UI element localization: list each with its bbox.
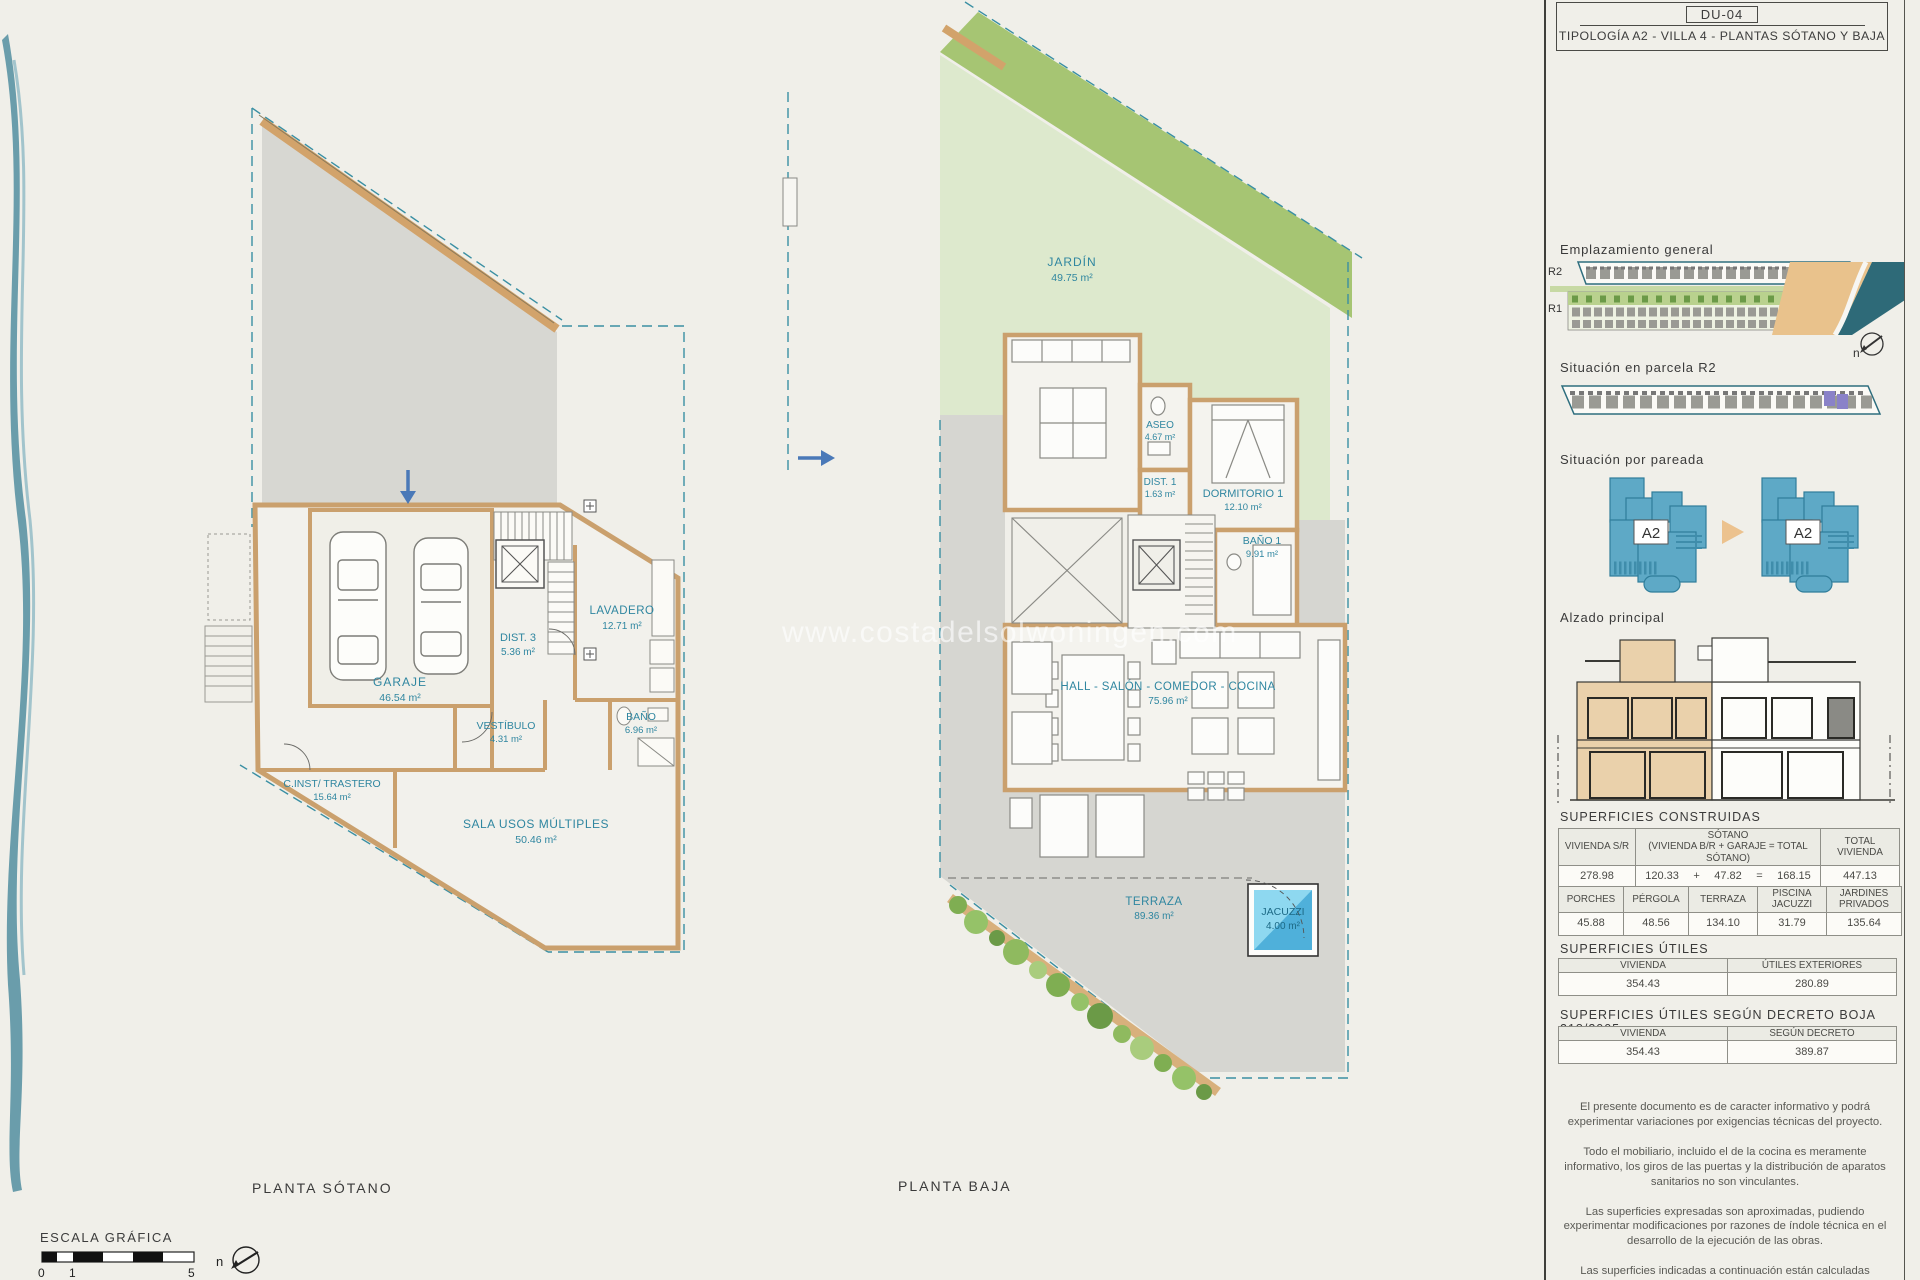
plan-baja: JARDÍN 49.75 m² ASEO 4.67 m² DIST. 1 1.6… xyxy=(783,2,1362,1100)
title-block: DU-04 TIPOLOGÍA A2 - VILLA 4 - PLANTAS S… xyxy=(1556,2,1888,51)
utiles-h-exteriores: ÚTILES EXTERIORES xyxy=(1728,959,1897,973)
watermark: www.costadelsolwoningen.com xyxy=(782,616,1238,650)
t1-col2-header: SÓTANO (VIVIENDA B/R + GARAJE = TOTAL SÓ… xyxy=(1636,829,1821,866)
t2-v-terraza: 134.10 xyxy=(1689,912,1758,935)
jacuzzi xyxy=(1246,880,1318,956)
room-area-sala: 50.46 m² xyxy=(515,834,557,846)
left-wave-decoration xyxy=(2,34,34,1192)
pareada-diagram: A2 A2 xyxy=(1610,478,1858,592)
emplazamiento-map: n xyxy=(1550,262,1905,360)
t1-value-sotano: 120.33 + 47.82 = 168.15 xyxy=(1636,865,1821,888)
t1-value-total: 447.13 xyxy=(1821,865,1900,888)
utiles-v-vivienda: 354.43 xyxy=(1559,973,1728,996)
room-label-trastero: C.INST/ TRASTERO xyxy=(283,778,380,790)
heading-alzado: Alzado principal xyxy=(1560,610,1665,625)
room-label-jacuzzi: JACUZZI xyxy=(1261,906,1304,918)
room-label-aseo: ASEO xyxy=(1146,420,1174,431)
pareada-unit-label-right: A2 xyxy=(1794,525,1812,542)
room-area-trastero: 15.64 m² xyxy=(313,792,351,803)
t1-v2b: 47.82 xyxy=(1714,870,1742,883)
room-label-sala: SALA USOS MÚLTIPLES xyxy=(463,816,609,831)
room-label-jardin: JARDÍN xyxy=(1047,254,1096,269)
room-area-bano1: 9.91 m² xyxy=(1246,549,1278,560)
t2-v-piscina: 31.79 xyxy=(1758,912,1827,935)
sotano-exterior-steps xyxy=(205,534,252,702)
legal-paragraph-1: El presente documento es de caracter inf… xyxy=(1560,1100,1890,1130)
baja-stairs-void xyxy=(1012,515,1215,628)
room-label-vestibulo: VESTÍBULO xyxy=(477,719,536,732)
scale-tick-1: 1 xyxy=(69,1266,76,1280)
t2-v-jardines: 135.64 xyxy=(1827,912,1902,935)
t1-value-vivienda-sr: 278.98 xyxy=(1559,865,1636,888)
caption-planta-sotano: PLANTA SÓTANO xyxy=(252,1180,393,1196)
t1-col3-header: TOTAL VIVIENDA xyxy=(1821,829,1900,866)
heading-pareada: Situación por pareada xyxy=(1560,452,1704,467)
t1-eq: = xyxy=(1756,870,1762,883)
title-rule xyxy=(1580,25,1865,26)
room-label-lavadero: LAVADERO xyxy=(590,605,655,617)
room-area-dist3: 5.36 m² xyxy=(501,647,536,658)
t1-col2a: SÓTANO xyxy=(1638,830,1818,841)
room-label-dist1: DIST. 1 xyxy=(1144,477,1177,488)
parcela-strip xyxy=(1562,386,1880,414)
north-arrow-sidebar: n xyxy=(1853,333,1883,360)
table-construidas-2: PORCHES PÉRGOLA TERRAZA PISCINA JACUZZI … xyxy=(1558,886,1902,936)
table-decreto: VIVIENDA SEGÚN DECRETO 354.43 389.87 xyxy=(1558,1026,1897,1064)
t1-v2c: 168.15 xyxy=(1777,870,1811,883)
room-area-garaje: 46.54 m² xyxy=(379,692,421,704)
room-label-bano1: BAÑO 1 xyxy=(1243,534,1282,547)
t1-v2a: 120.33 xyxy=(1645,870,1679,883)
room-area-dist1: 1.63 m² xyxy=(1145,489,1176,499)
room-area-lavadero: 12.71 m² xyxy=(602,621,642,632)
page-right-border xyxy=(1904,0,1905,1280)
room-area-aseo: 4.67 m² xyxy=(1145,432,1176,442)
t1-col1-header: VIVIENDA S/R xyxy=(1559,829,1636,866)
heading-utiles: SUPERFICIES ÚTILES xyxy=(1560,942,1709,956)
heading-construidas: SUPERFICIES CONSTRUIDAS xyxy=(1560,810,1761,824)
baja-gate xyxy=(783,178,797,226)
room-area-vestibulo: 4.31 m² xyxy=(490,734,522,745)
room-area-jacuzzi: 4.00 m² xyxy=(1266,921,1301,932)
decreto-h-vivienda: VIVIENDA xyxy=(1559,1027,1728,1041)
heading-emplazamiento: Emplazamiento general xyxy=(1560,242,1713,257)
baja-entry-arrow xyxy=(798,450,835,466)
t2-h-jardines: JARDINES PRIVADOS xyxy=(1827,887,1902,913)
north-arrow-main: n xyxy=(216,1247,259,1273)
legal-paragraph-4: Las superficies indicadas a continuación… xyxy=(1560,1264,1890,1280)
decreto-v-vivienda: 354.43 xyxy=(1559,1041,1728,1064)
t2-h-piscina: PISCINA JACUZZI xyxy=(1758,887,1827,913)
t1-plus: + xyxy=(1693,870,1699,883)
north-label-sidebar: n xyxy=(1853,346,1860,360)
utiles-h-vivienda: VIVIENDA xyxy=(1559,959,1728,973)
t1-col2b: (VIVIENDA B/R + GARAJE = TOTAL SÓTANO) xyxy=(1638,841,1818,864)
room-area-dorm1: 12.10 m² xyxy=(1224,502,1262,513)
t2-h-porches: PORCHES xyxy=(1559,887,1624,913)
panel-divider xyxy=(1544,0,1546,1280)
sheet-code: DU-04 xyxy=(1686,6,1759,23)
north-label-main: n xyxy=(216,1254,223,1269)
room-label-dist3: DIST. 3 xyxy=(500,632,536,644)
pareada-arrow xyxy=(1722,520,1744,544)
room-label-terraza: TERRAZA xyxy=(1125,896,1182,908)
plan-sotano: GARAJE 46.54 m² DIST. 3 5.36 m² LAVADERO… xyxy=(205,108,684,952)
alzado-elevation xyxy=(1558,638,1895,806)
table-utiles: VIVIENDA ÚTILES EXTERIORES 354.43 280.89 xyxy=(1558,958,1897,996)
room-area-terraza: 89.36 m² xyxy=(1134,911,1174,922)
t2-h-pergola: PÉRGOLA xyxy=(1624,887,1689,913)
heading-parcela: Situación en parcela R2 xyxy=(1560,360,1716,375)
legal-paragraph-3: Las superficies expresadas son aproximad… xyxy=(1560,1205,1890,1250)
scale-title: ESCALA GRÁFICA xyxy=(40,1230,173,1245)
lavadero-fixtures xyxy=(650,560,674,692)
legal-paragraph-2: Todo el mobiliario, incluido el de la co… xyxy=(1560,1145,1890,1190)
room-label-dorm1: DORMITORIO 1 xyxy=(1203,488,1283,500)
t2-h-terraza: TERRAZA xyxy=(1689,887,1758,913)
plan-sheet: GARAJE 46.54 m² DIST. 3 5.36 m² LAVADERO… xyxy=(0,0,1920,1280)
caption-planta-baja: PLANTA BAJA xyxy=(898,1178,1012,1194)
sheet-title: TIPOLOGÍA A2 - VILLA 4 - PLANTAS SÓTANO … xyxy=(1559,29,1885,43)
room-label-bano: BAÑO xyxy=(626,710,656,723)
legal-disclaimer: El presente documento es de caracter inf… xyxy=(1560,1100,1890,1280)
scale-tick-0: 0 xyxy=(38,1266,45,1280)
room-label-garaje: GARAJE xyxy=(373,675,427,689)
room-label-salon: HALL - SALÓN - COMEDOR - COCINA xyxy=(1060,680,1275,693)
pareada-unit-label-left: A2 xyxy=(1642,525,1660,542)
decreto-v-segun: 389.87 xyxy=(1728,1041,1897,1064)
room-area-bano: 6.96 m² xyxy=(625,725,657,736)
utiles-v-exteriores: 280.89 xyxy=(1728,973,1897,996)
t2-v-pergola: 48.56 xyxy=(1624,912,1689,935)
decreto-h-segun: SEGÚN DECRETO xyxy=(1728,1027,1897,1041)
label-r1: R1 xyxy=(1548,303,1562,315)
room-area-salon: 75.96 m² xyxy=(1148,696,1188,707)
baja-terrace-right-strip xyxy=(1297,520,1345,626)
table-construidas-1: VIVIENDA S/R SÓTANO (VIVIENDA B/R + GARA… xyxy=(1558,828,1900,889)
scale-bar xyxy=(42,1252,194,1262)
scale-tick-5: 5 xyxy=(188,1266,195,1280)
sotano-uncovered-area xyxy=(262,125,557,527)
label-r2: R2 xyxy=(1548,266,1562,278)
room-area-jardin: 49.75 m² xyxy=(1051,272,1093,284)
t2-v-porches: 45.88 xyxy=(1559,912,1624,935)
